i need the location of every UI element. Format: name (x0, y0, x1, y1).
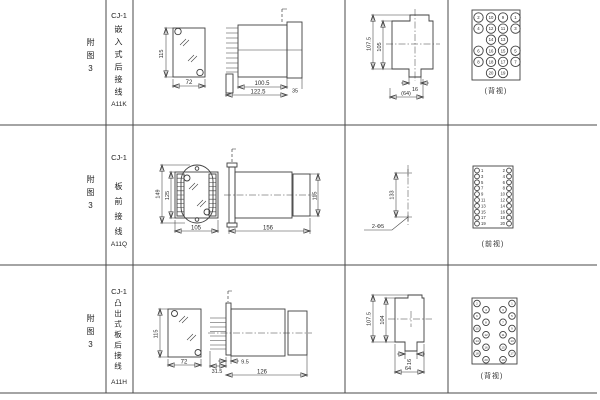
row2-figure-label: 附图3 (86, 175, 94, 215)
dim-100-5: 100.5 (254, 81, 270, 87)
terminal-circle (507, 198, 512, 203)
row1-code-label: A11K (104, 101, 134, 108)
terminal-circle (507, 209, 512, 214)
terminal-number: 5 (514, 48, 517, 53)
terminal-circle (507, 168, 512, 173)
terminal-number: 12 (489, 26, 494, 31)
row1-model-label: CJ-1 (104, 11, 134, 20)
terminal-number: 6 (503, 180, 506, 185)
terminal-circle (475, 168, 480, 173)
terminal-number: 17 (501, 59, 506, 64)
terminal-number: 8 (503, 186, 506, 191)
row1-panel-cutout-view: 107.5 105 16 (64) (367, 9, 441, 99)
dim-16: 16 (412, 87, 418, 93)
terminal-number: 8 (485, 320, 487, 324)
terminal-number: 13 (481, 203, 486, 208)
terminal-number: 14 (500, 203, 505, 208)
terminal-strip (209, 178, 216, 212)
row2-mounting-holes-view: 133 2-Φ5 (364, 165, 412, 230)
row2-side-view: 156 115 (224, 149, 320, 234)
dim-16: 16 (407, 359, 413, 365)
row3-model-label: CJ-1 (104, 287, 134, 296)
dim-107-5: 107.5 (367, 37, 373, 51)
terminal-number: 19 (481, 221, 486, 226)
dim-125: 125 (165, 191, 171, 200)
terminal-number: 10 (475, 327, 479, 331)
terminal-circle (475, 186, 480, 191)
terminal-number: 4 (477, 26, 480, 31)
terminal-number: 19 (501, 358, 505, 362)
terminal-number: 16 (500, 209, 505, 214)
terminal-circle (507, 192, 512, 197)
dim-115: 115 (313, 192, 319, 201)
terminal-number: 20 (489, 71, 494, 76)
terminal-circle (507, 204, 512, 209)
terminal-number: 2 (503, 168, 506, 173)
terminal-number: 3 (502, 308, 504, 312)
terminal-number: 17 (510, 352, 514, 356)
hole-callout: 2-Φ5 (372, 224, 384, 230)
terminal-circle (475, 180, 480, 185)
terminal-number: 11 (481, 198, 486, 203)
terminal-circle (475, 221, 480, 226)
mounting-hole (197, 69, 203, 75)
dim-156: 156 (263, 226, 274, 232)
terminal-number: 8 (477, 59, 480, 64)
terminal-number: 7 (502, 320, 504, 324)
terminal-number: 9 (502, 15, 505, 20)
glass-hatch-marks (179, 316, 196, 341)
row3-side-view: 9.5 31.5 126 (208, 291, 312, 377)
terminal-number: 4 (503, 174, 506, 179)
terminal-number: 15 (501, 48, 506, 53)
terminal-number: 6 (477, 48, 480, 53)
terminal-number: 13 (501, 37, 506, 42)
terminal-number: 3 (514, 26, 517, 31)
terminal-number: 11 (501, 26, 506, 31)
row1-terminal-view: 2109141211314136161558181772019 (472, 10, 520, 80)
terminal-number: 2 (477, 15, 480, 20)
terminal-number: 20 (484, 358, 488, 362)
terminal-circle (475, 204, 480, 209)
terminal-number: 12 (484, 333, 488, 337)
terminal-number: 1 (511, 302, 513, 306)
row3-type-label: 凸出式板后接线 (114, 299, 122, 373)
terminal-number: 1 (514, 15, 517, 20)
leader-line (364, 217, 408, 230)
terminal-circle (475, 215, 480, 220)
dim-107-5: 107.5 (367, 312, 373, 326)
technical-drawing-sheet: 115 72 100.5 122.5 35 107.5 105 16 (64) (0, 0, 600, 400)
terminal-number: 10 (489, 15, 494, 20)
mounting-hole (195, 167, 199, 171)
terminal-circle (475, 209, 480, 214)
terminal-number: 7 (514, 59, 517, 64)
dim-122-5: 122.5 (250, 90, 266, 96)
terminal-number: 9 (481, 192, 484, 197)
terminal-number: 5 (481, 180, 484, 185)
terminal-circle (507, 174, 512, 179)
row2-model-label: CJ-1 (104, 153, 134, 162)
terminal-number: 2 (476, 302, 478, 306)
terminal-circle (507, 215, 512, 220)
terminal-pins (226, 28, 238, 72)
dim-105: 105 (377, 42, 383, 51)
glass-hatch-marks (180, 39, 197, 62)
dim-105: 105 (191, 226, 202, 232)
terminal-number: 18 (489, 59, 494, 64)
terminal-number: 5 (511, 314, 513, 318)
terminal-circle (507, 180, 512, 185)
glass-hatch-marks (189, 183, 206, 207)
dim-64: (64) (401, 91, 411, 97)
terminal-number: 16 (484, 345, 488, 349)
terminal-pins (210, 318, 226, 349)
row3-panel-cutout-view: 107.5 104 16 64 (367, 295, 433, 374)
terminal-block-outline (472, 10, 520, 80)
dim-9-5: 9.5 (241, 360, 249, 366)
terminal-number: 3 (481, 174, 484, 179)
dim-126: 126 (257, 370, 268, 376)
terminal-number: 9 (511, 327, 513, 331)
dim-35: 35 (292, 89, 298, 95)
screw (184, 175, 190, 181)
dim-133: 133 (390, 190, 396, 199)
row3-figure-label: 附图3 (86, 314, 94, 354)
dim-64: 64 (405, 366, 411, 372)
terminal-number: 20 (500, 221, 505, 226)
dim-115: 115 (159, 50, 165, 59)
terminal-number: 11 (501, 333, 504, 337)
row2-code-label: A11Q (104, 241, 134, 248)
terminal-strip (177, 178, 184, 212)
terminal-number: 6 (476, 314, 478, 318)
row2-front-view: 149 125 105 (156, 165, 219, 233)
row3-code-label: A11H (104, 379, 134, 386)
terminal-number: 13 (510, 339, 514, 343)
dim-115: 115 (154, 330, 160, 339)
terminal-number: 15 (501, 345, 505, 349)
terminal-number: 16 (489, 48, 494, 53)
terminal-number: 4 (485, 308, 487, 312)
row3-view-label: (背视) (481, 371, 504, 380)
mounting-hole (172, 311, 178, 317)
terminal-circle (507, 186, 512, 191)
dim-72: 72 (186, 80, 193, 86)
terminal-number: 19 (501, 71, 506, 76)
terminal-number: 12 (500, 198, 505, 203)
terminal-number: 18 (475, 352, 479, 356)
terminal-number: 17 (481, 215, 486, 220)
row1-side-view: 100.5 122.5 35 (226, 9, 302, 97)
terminal-number: 15 (481, 209, 486, 214)
terminal-number: 18 (500, 215, 505, 220)
terminal-circle (475, 174, 480, 179)
terminal-number: 10 (500, 192, 505, 197)
row3-terminal-view: 2610141848121620371115191591317 (472, 298, 517, 364)
dim-31-5: 31.5 (212, 369, 223, 375)
terminal-circle (507, 221, 512, 226)
terminal-number: 14 (489, 37, 494, 42)
dim-149: 149 (156, 189, 162, 198)
terminal-number: 14 (475, 339, 479, 343)
dim-104: 104 (380, 315, 386, 324)
terminal-number: 1 (481, 168, 484, 173)
row3-front-view: 115 72 (154, 309, 202, 367)
row2-view-label: (前视) (482, 239, 505, 248)
row1-type-label: 嵌入式后接线 (114, 25, 122, 100)
mounting-hole (195, 350, 201, 356)
terminal-circle (475, 198, 480, 203)
row1-view-label: (背视) (485, 86, 508, 95)
terminal-number: 7 (481, 186, 484, 191)
row2-terminal-view: 1234567891011121314151617181920 (473, 166, 513, 228)
terminal-circle (475, 192, 480, 197)
row1-figure-label: 附图3 (86, 38, 94, 78)
row2-type-label: 板前接线 (114, 182, 122, 242)
row1-front-view: 115 72 (159, 28, 205, 88)
dim-72: 72 (181, 360, 188, 366)
mounting-hole (175, 28, 181, 34)
